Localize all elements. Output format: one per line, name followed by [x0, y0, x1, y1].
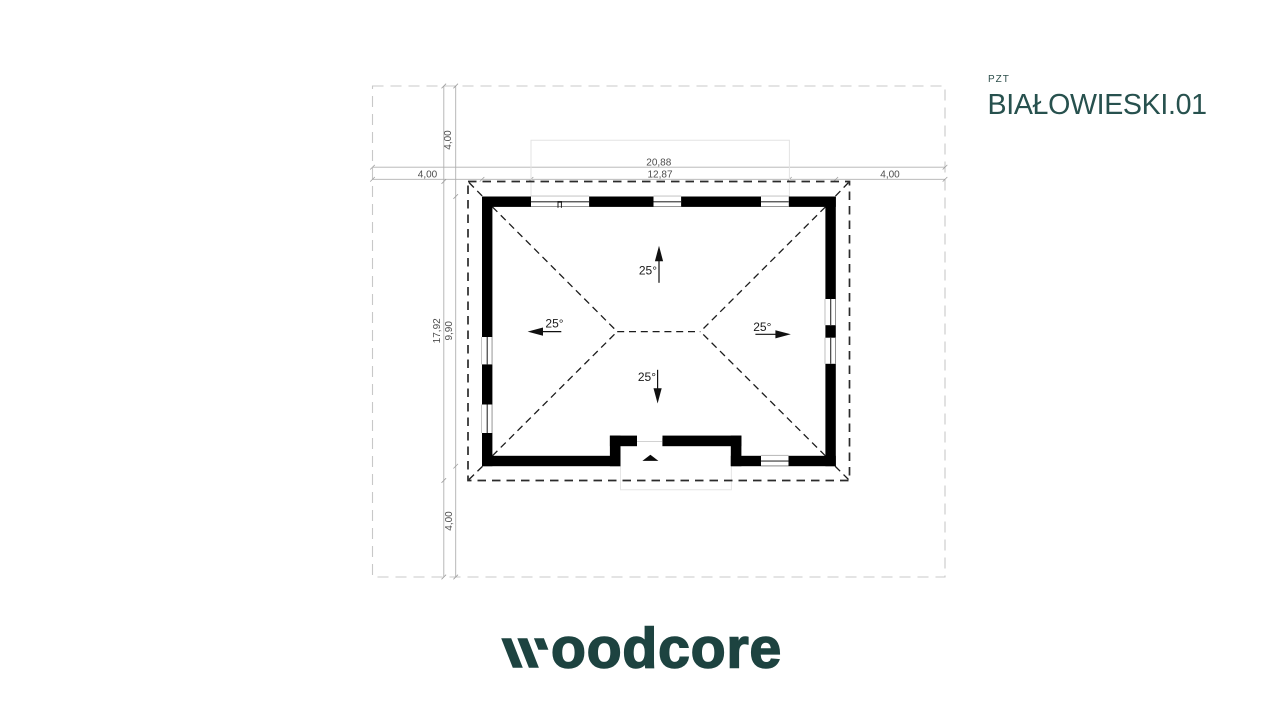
svg-text:oodcore: oodcore — [551, 617, 782, 681]
svg-text:25°: 25° — [753, 320, 771, 334]
svg-text:9,90: 9,90 — [444, 321, 455, 341]
svg-text:17,92: 17,92 — [432, 318, 443, 343]
svg-text:25°: 25° — [545, 317, 563, 331]
svg-text:20,88: 20,88 — [646, 157, 671, 168]
svg-text:4,00: 4,00 — [880, 170, 900, 181]
svg-text:4,00: 4,00 — [444, 511, 455, 531]
svg-text:4,00: 4,00 — [443, 130, 454, 150]
svg-text:12,87: 12,87 — [647, 170, 672, 181]
svg-text:25°: 25° — [639, 264, 657, 278]
svg-text:4,00: 4,00 — [418, 170, 438, 181]
svg-text:BIAŁOWIESKI.01: BIAŁOWIESKI.01 — [988, 89, 1207, 121]
svg-text:PZT: PZT — [988, 74, 1010, 85]
svg-text:25°: 25° — [638, 370, 656, 384]
